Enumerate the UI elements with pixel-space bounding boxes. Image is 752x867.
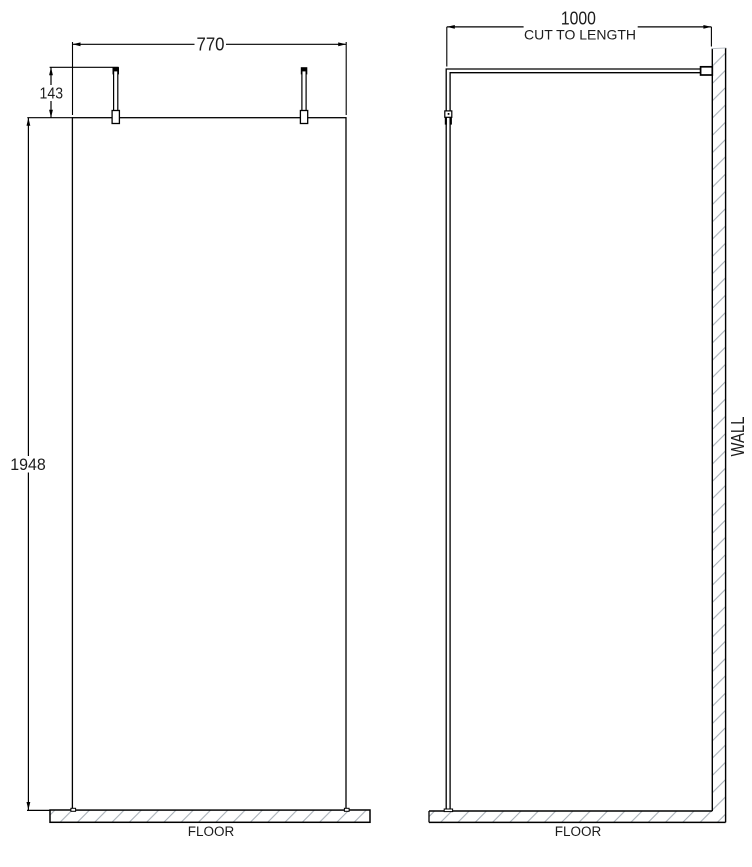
svg-text:FLOOR: FLOOR — [188, 824, 235, 839]
svg-text:143: 143 — [40, 86, 64, 103]
svg-text:1948: 1948 — [10, 455, 46, 474]
svg-text:WALL: WALL — [728, 417, 748, 457]
svg-text:CUT TO LENGTH: CUT TO LENGTH — [524, 27, 636, 43]
svg-text:FLOOR: FLOOR — [555, 824, 602, 839]
svg-text:1000: 1000 — [561, 9, 596, 29]
svg-text:770: 770 — [197, 35, 225, 55]
